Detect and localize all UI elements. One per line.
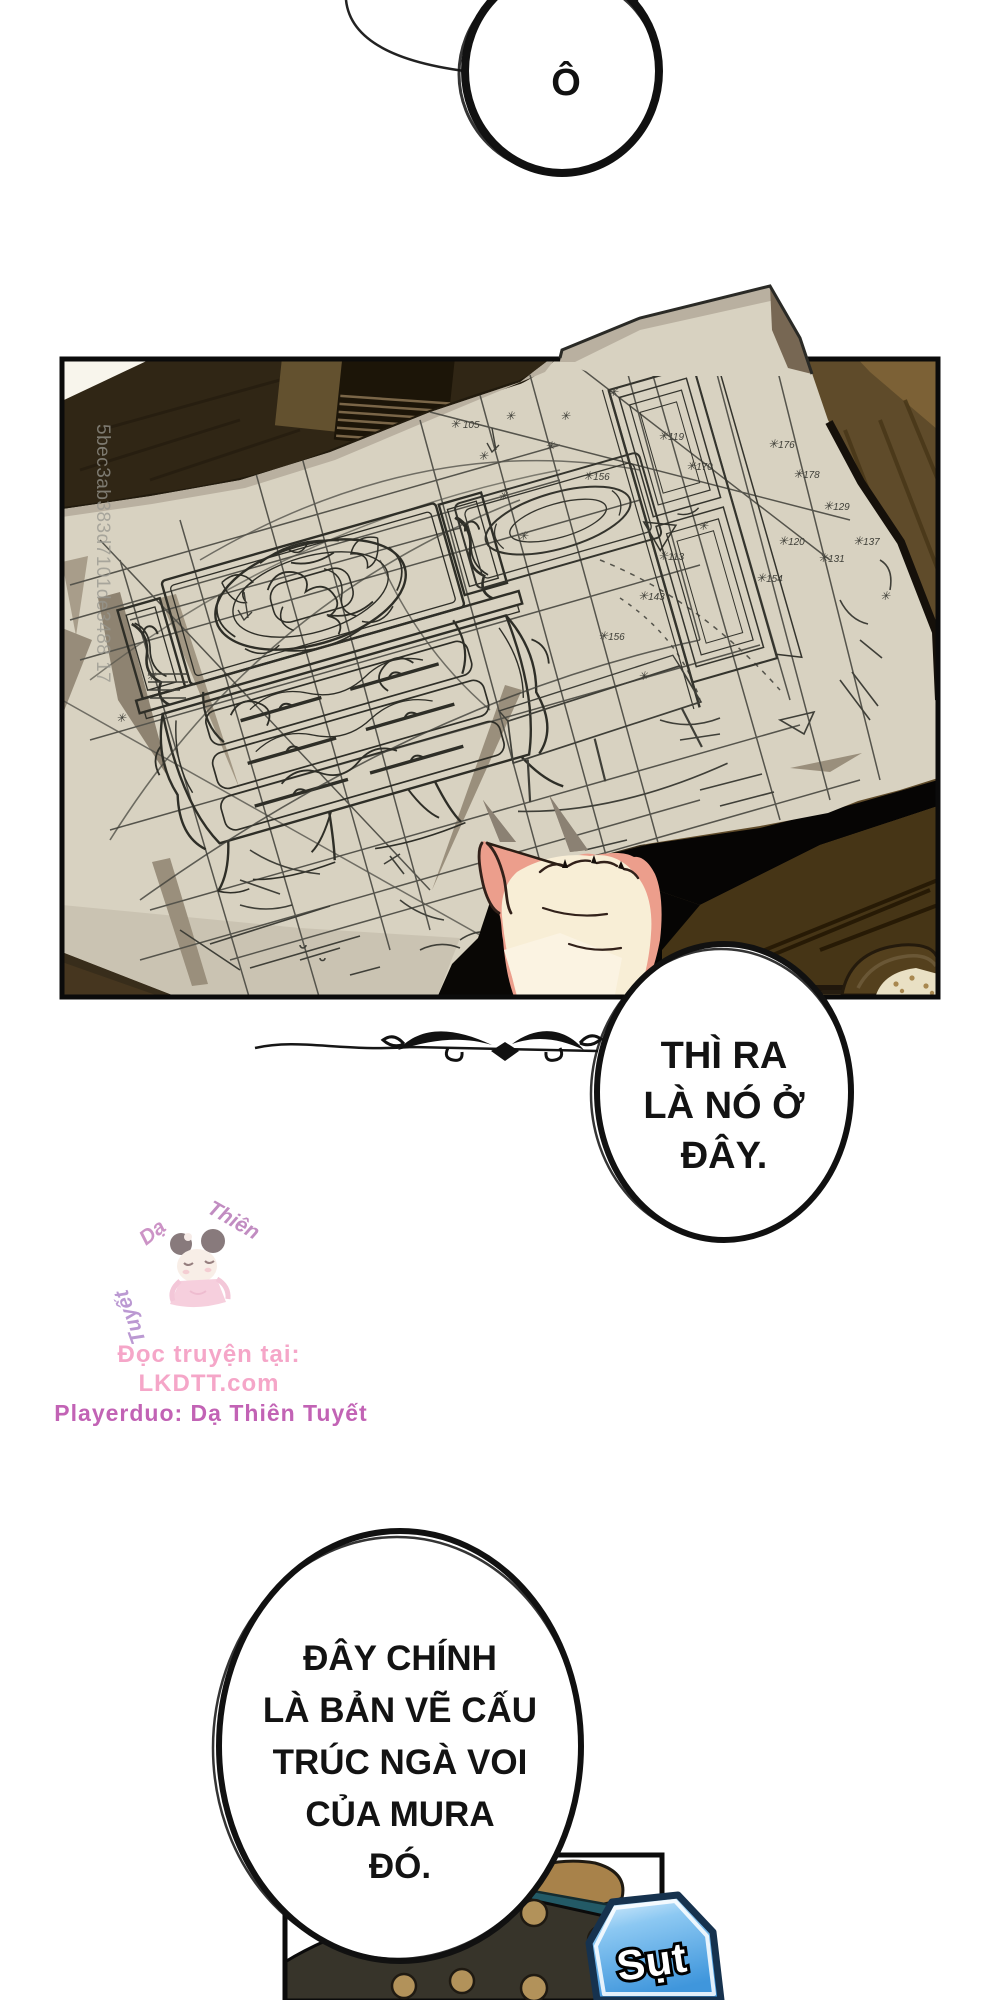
svg-text:✳: ✳ (545, 439, 556, 453)
svg-text:✳: ✳ (698, 519, 709, 533)
svg-text:✳137: ✳137 (853, 534, 880, 548)
svg-text:✳: ✳ (518, 529, 529, 543)
svg-text:✳143: ✳143 (638, 589, 665, 603)
svg-text:✳ 105: ✳ 105 (450, 417, 480, 431)
svg-text:✳154: ✳154 (756, 571, 783, 585)
svg-text:✳120: ✳120 (778, 534, 805, 548)
svg-text:✳170: ✳170 (686, 459, 713, 473)
svg-text:✳: ✳ (498, 489, 509, 503)
svg-text:Ô: Ô (551, 59, 581, 104)
svg-text:✳129: ✳129 (823, 499, 850, 513)
svg-text:✳: ✳ (560, 409, 571, 423)
svg-text:✳178: ✳178 (793, 467, 820, 481)
svg-text:✳156: ✳156 (598, 629, 625, 643)
svg-text:✳113: ✳113 (658, 549, 684, 563)
svg-text:✳: ✳ (608, 385, 619, 399)
svg-text:Dạ: Dạ (135, 1215, 171, 1250)
svg-text:✳131: ✳131 (818, 551, 845, 565)
svg-text:✳: ✳ (116, 711, 127, 725)
svg-text:5bec3ab383d7101de3488 17: 5bec3ab383d7101de3488 17 (92, 424, 113, 683)
svg-text:✳: ✳ (478, 449, 489, 463)
svg-text:✳119: ✳119 (658, 429, 684, 443)
svg-text:✳: ✳ (880, 589, 891, 603)
svg-text:✳: ✳ (638, 669, 649, 683)
svg-text:✳156: ✳156 (583, 469, 610, 483)
svg-text:Sụt: Sụt (614, 1933, 691, 1989)
svg-text:✳: ✳ (146, 669, 157, 683)
svg-text:✳: ✳ (505, 409, 516, 423)
svg-text:Tuyết: Tuyết (110, 1286, 151, 1347)
svg-text:✳176: ✳176 (768, 437, 795, 451)
